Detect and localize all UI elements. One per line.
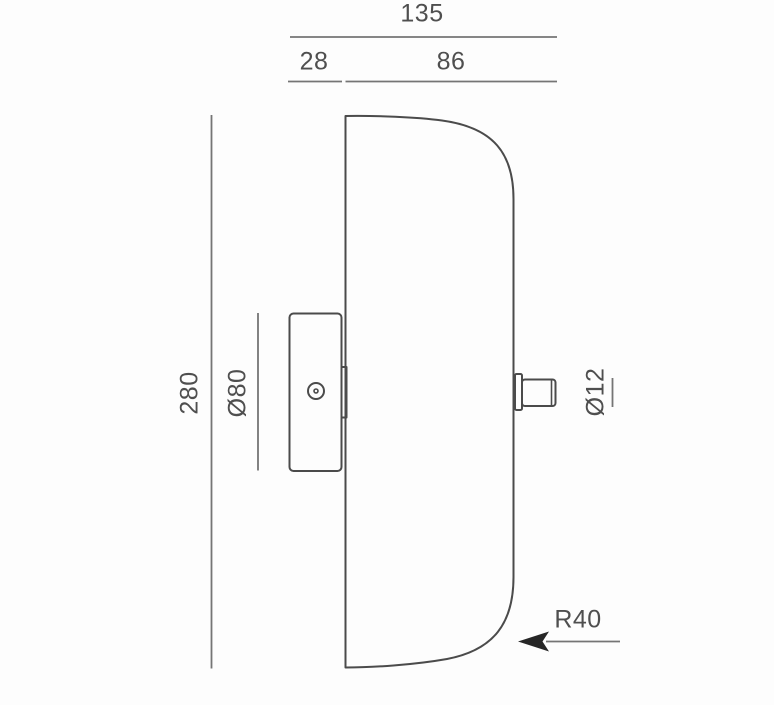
label-corner-radius: R40: [554, 608, 601, 633]
stem-body: [522, 380, 556, 407]
stem-flange: [515, 374, 522, 410]
label-backplate-depth: 28: [300, 50, 329, 75]
label-backplate-diameter: Ø80: [226, 369, 251, 418]
dimension-lines: [212, 37, 621, 669]
screw-head: [308, 383, 324, 399]
label-overall-depth: 135: [400, 2, 443, 27]
label-shade-depth: 86: [437, 50, 466, 75]
radius-arrow-head-icon: [518, 632, 549, 652]
label-stem-diameter: Ø12: [584, 368, 609, 417]
drawing-svg: [0, 0, 774, 705]
technical-drawing-canvas: 135 28 86 280 Ø80 Ø12 R40: [0, 0, 774, 705]
backplate-bracket: [342, 367, 347, 418]
label-overall-height: 280: [178, 371, 203, 414]
lamp-shade-outline: [346, 116, 514, 668]
screw-center-dot: [314, 389, 318, 393]
lamp-drawing: [290, 116, 556, 668]
